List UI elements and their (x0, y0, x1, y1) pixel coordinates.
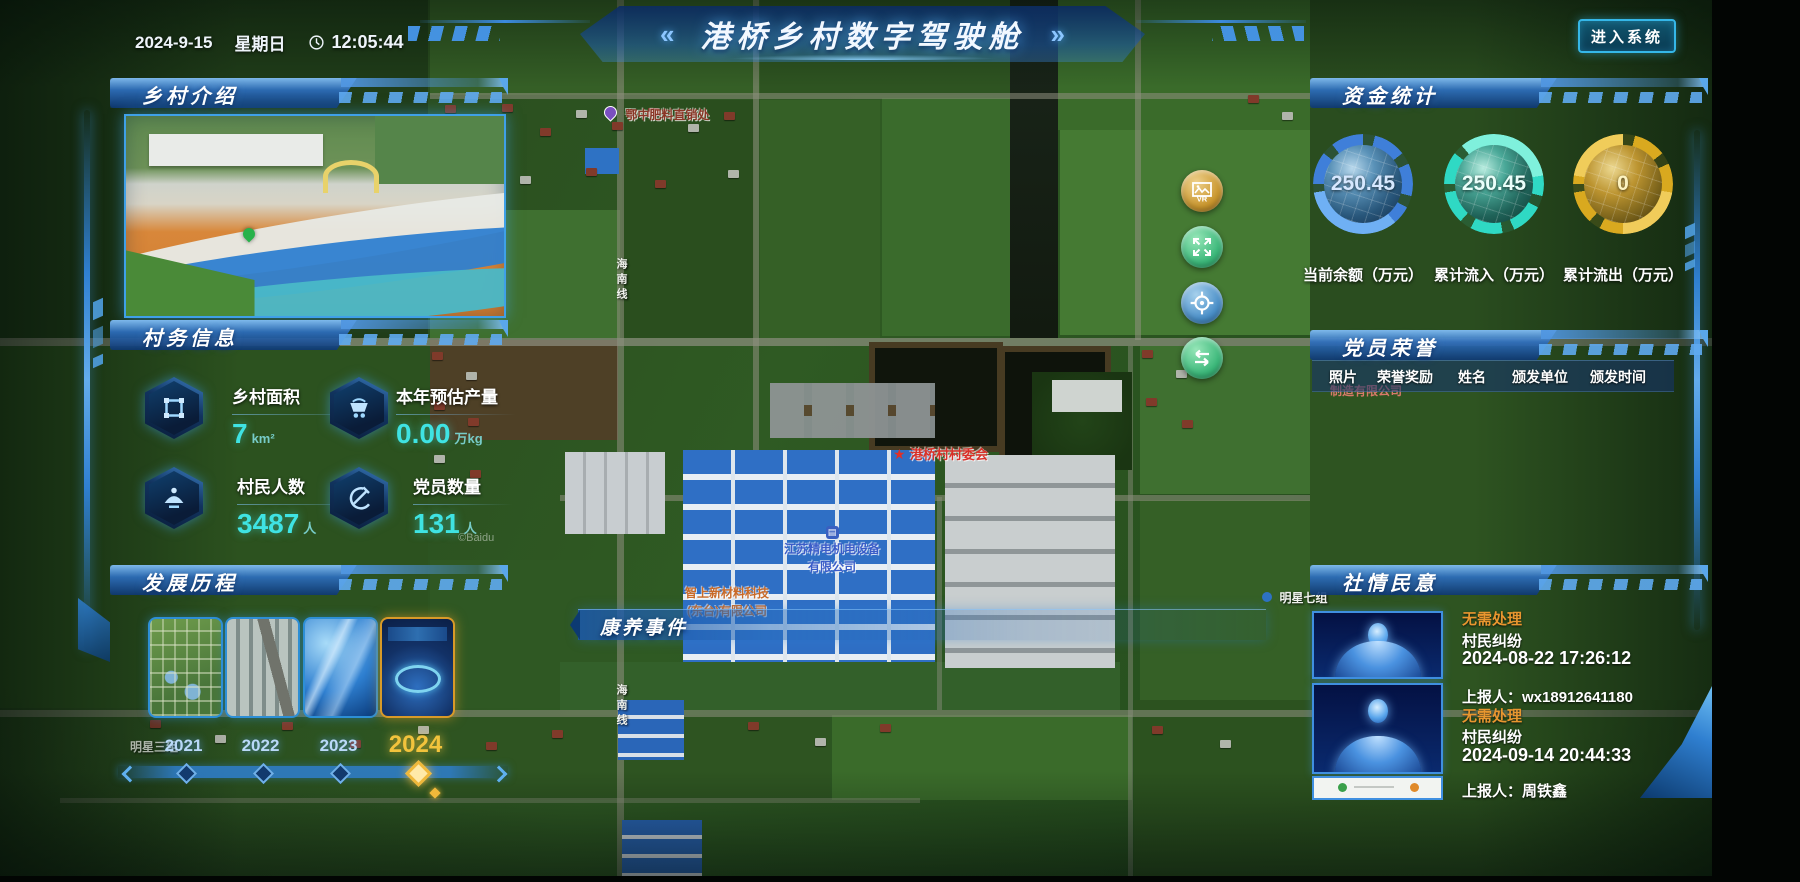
panel-title: 康养事件 (600, 613, 688, 640)
bottom-black-bar (0, 876, 1800, 882)
gauge-value: 250.45 (1313, 134, 1413, 234)
house (1142, 350, 1153, 358)
enter-system-button[interactable]: 进入系统 (1578, 19, 1676, 53)
gauge-inflow: 250.45 (1444, 134, 1544, 234)
field (882, 98, 1010, 336)
panel-title: 发展历程 (142, 567, 238, 596)
panel-title: 村务信息 (142, 322, 238, 351)
stat-label: 党员数量 (413, 473, 513, 498)
road (1135, 0, 1141, 340)
gauge-value: 0 (1573, 134, 1673, 234)
vr-panorama-button[interactable]: VR (1181, 170, 1223, 212)
gauge-label: 累计流入（万元） (1434, 264, 1554, 285)
map-label-fertilizer: 鄂中肥料直销处 (604, 106, 709, 124)
right-black-bar (1712, 0, 1800, 882)
blue-panels (622, 820, 702, 876)
banner-wing-right (1136, 20, 1306, 23)
sentiment-item-photo-partial[interactable] (1312, 776, 1443, 800)
map-label-committee: ★ 港桥村村委会 (893, 444, 988, 464)
panel-header-affairs: 村务信息 (110, 318, 508, 352)
panel-header-intro: 乡村介绍 (110, 76, 508, 110)
party-icon (330, 467, 388, 529)
house (728, 170, 739, 178)
arch-sculpture (323, 160, 379, 193)
house (880, 724, 891, 732)
cart-icon (330, 377, 388, 439)
stat-value: 131 (413, 508, 460, 539)
stat-party-members: 党员数量 131人 (413, 473, 513, 538)
dashboard-screen: 鄂中肥料直销处 ★ 港桥村村委会 ▤ 江苏精电机电设备 有限公司 智上新材料科技… (0, 0, 1800, 882)
villa-block (770, 383, 935, 438)
year-2023[interactable]: 2023 (301, 736, 376, 756)
road (753, 0, 759, 497)
map-label-road-2: 海南线 (613, 684, 629, 729)
sentiment-reporter: 上报人：周铁鑫 (1462, 780, 1567, 801)
stat-value: 7 (232, 418, 248, 449)
committee-building (1052, 380, 1122, 412)
stat-label: 本年预估产量 (396, 383, 516, 408)
house (552, 730, 563, 738)
map-label-road-1: 海南线 (613, 258, 629, 303)
panel-header-history: 发展历程 (110, 563, 508, 597)
white-building (565, 452, 665, 534)
gauge-label: 当前余额（万元） (1303, 264, 1423, 285)
gauge-value: 250.45 (1444, 134, 1544, 234)
road (430, 93, 1310, 99)
building-icon: ▤ (826, 526, 839, 539)
history-thumb-2021[interactable] (148, 617, 223, 718)
house (434, 455, 445, 463)
crosshair-icon (1189, 290, 1215, 316)
panel-header-funds: 资金统计 (1310, 76, 1708, 110)
area-icon (145, 377, 203, 439)
panel-title: 乡村介绍 (142, 80, 238, 109)
house (1152, 726, 1163, 734)
hologram-person-icon (1368, 699, 1388, 723)
banner-wing-left (420, 20, 590, 23)
house (1220, 740, 1231, 748)
house (466, 372, 477, 380)
col-issuer: 颁发单位 (1512, 367, 1568, 387)
col-award: 荣誉奖励 (1377, 367, 1433, 387)
datetime-bar: 2024-9-15 星期日 12:05:44 (135, 30, 404, 55)
field (760, 100, 880, 338)
field (1140, 346, 1310, 494)
honors-table-header: 照片 荣誉奖励 姓名 颁发单位 颁发时间 (1312, 360, 1674, 392)
sentiment-datetime: 2024-09-14 20:44:33 (1462, 745, 1631, 766)
house (1282, 112, 1293, 120)
house (282, 722, 293, 730)
gauge-balance: 250.45 (1313, 134, 1413, 234)
time-text: 12:05:44 (332, 32, 404, 53)
house (432, 352, 443, 360)
field (832, 715, 1132, 800)
panel-header-honors: 党员荣誉 (1310, 328, 1708, 362)
house (655, 180, 666, 188)
road (560, 495, 1310, 501)
house (1248, 95, 1259, 103)
panel-title: 社情民意 (1342, 567, 1438, 596)
sentiment-category: 村民纠纷 (1462, 726, 1522, 747)
layers-swap-button[interactable] (1181, 337, 1223, 379)
page-title: 港桥乡村数字驾驶舱 (701, 12, 1025, 56)
stat-unit: 人 (303, 521, 316, 536)
fullscreen-button[interactable] (1181, 226, 1223, 268)
swap-arrows-icon (1190, 346, 1214, 370)
time-wrap: 12:05:44 (308, 32, 404, 53)
year-2024[interactable]: 2024 (378, 731, 453, 759)
stop-icon (1262, 592, 1272, 602)
house (486, 742, 497, 750)
stat-unit: 万kg (455, 431, 483, 446)
map-label-jingdian: ▤ 江苏精电机电设备 有限公司 (772, 522, 892, 576)
sentiment-item-photo[interactable] (1312, 683, 1443, 774)
history-thumb-2022[interactable] (225, 617, 300, 718)
house (815, 738, 826, 746)
people-icon (145, 467, 203, 529)
vr-picture-icon: VR (1190, 179, 1214, 203)
sentiment-status: 无需处理 (1462, 608, 1522, 629)
panel-header-sentiment: 社情民意 (1310, 563, 1708, 597)
house (576, 110, 587, 118)
year-2022[interactable]: 2022 (223, 736, 298, 756)
stat-value: 3487 (237, 508, 299, 539)
field (622, 100, 754, 338)
history-thumb-2024[interactable] (380, 617, 455, 718)
house (540, 128, 551, 136)
locate-button[interactable] (1181, 282, 1223, 324)
banner-dashes-left (408, 26, 500, 41)
poi-marker-icon (601, 103, 619, 121)
title-banner: « 港桥乡村数字驾驶舱 » (580, 6, 1145, 62)
gauge-label: 累计流出（万元） (1563, 264, 1683, 285)
year-2021[interactable]: 2021 (146, 736, 221, 756)
house (520, 176, 531, 184)
stat-value: 0.00 (396, 418, 451, 449)
stat-unit: 人 (464, 521, 477, 536)
stat-unit: km² (252, 431, 275, 446)
star-icon: ★ (893, 446, 906, 462)
col-name: 姓名 (1458, 367, 1486, 387)
clock-icon (308, 34, 325, 51)
house (586, 168, 597, 176)
house (1182, 420, 1193, 428)
house (724, 112, 735, 120)
right-chevron-icon: » (1051, 19, 1065, 50)
left-frame-strip (84, 110, 90, 650)
weekday-text: 星期日 (235, 30, 286, 55)
panel-title: 党员荣誉 (1342, 332, 1438, 361)
col-date: 颁发时间 (1590, 367, 1646, 387)
road (937, 497, 942, 710)
history-thumb-2023[interactable] (303, 617, 378, 718)
health-events-bar: 康养事件 (578, 609, 1266, 640)
panel-title: 资金统计 (1342, 80, 1438, 109)
house (150, 720, 161, 728)
house (1146, 398, 1157, 406)
expand-arrows-icon (1190, 235, 1214, 259)
sentiment-status: 无需处理 (1462, 705, 1522, 726)
gauge-outflow: 0 (1573, 134, 1673, 234)
sentiment-reporter: 上报人：wx18912641180 (1462, 686, 1633, 707)
sentiment-datetime: 2024-08-22 17:26:12 (1462, 648, 1631, 669)
date-text: 2024-9-15 (135, 33, 213, 53)
left-chevron-icon: « (660, 19, 674, 50)
house (688, 124, 699, 132)
sentiment-item-photo[interactable] (1312, 611, 1443, 679)
house (748, 722, 759, 730)
right-frame-strip (1694, 130, 1700, 630)
svg-text:VR: VR (1197, 195, 1208, 204)
stat-output: 本年预估产量 0.00万kg (396, 383, 516, 448)
col-photo: 照片 (1329, 367, 1357, 387)
road (60, 798, 920, 803)
village-photo (124, 114, 506, 318)
banner-dashes-right (1212, 26, 1304, 41)
